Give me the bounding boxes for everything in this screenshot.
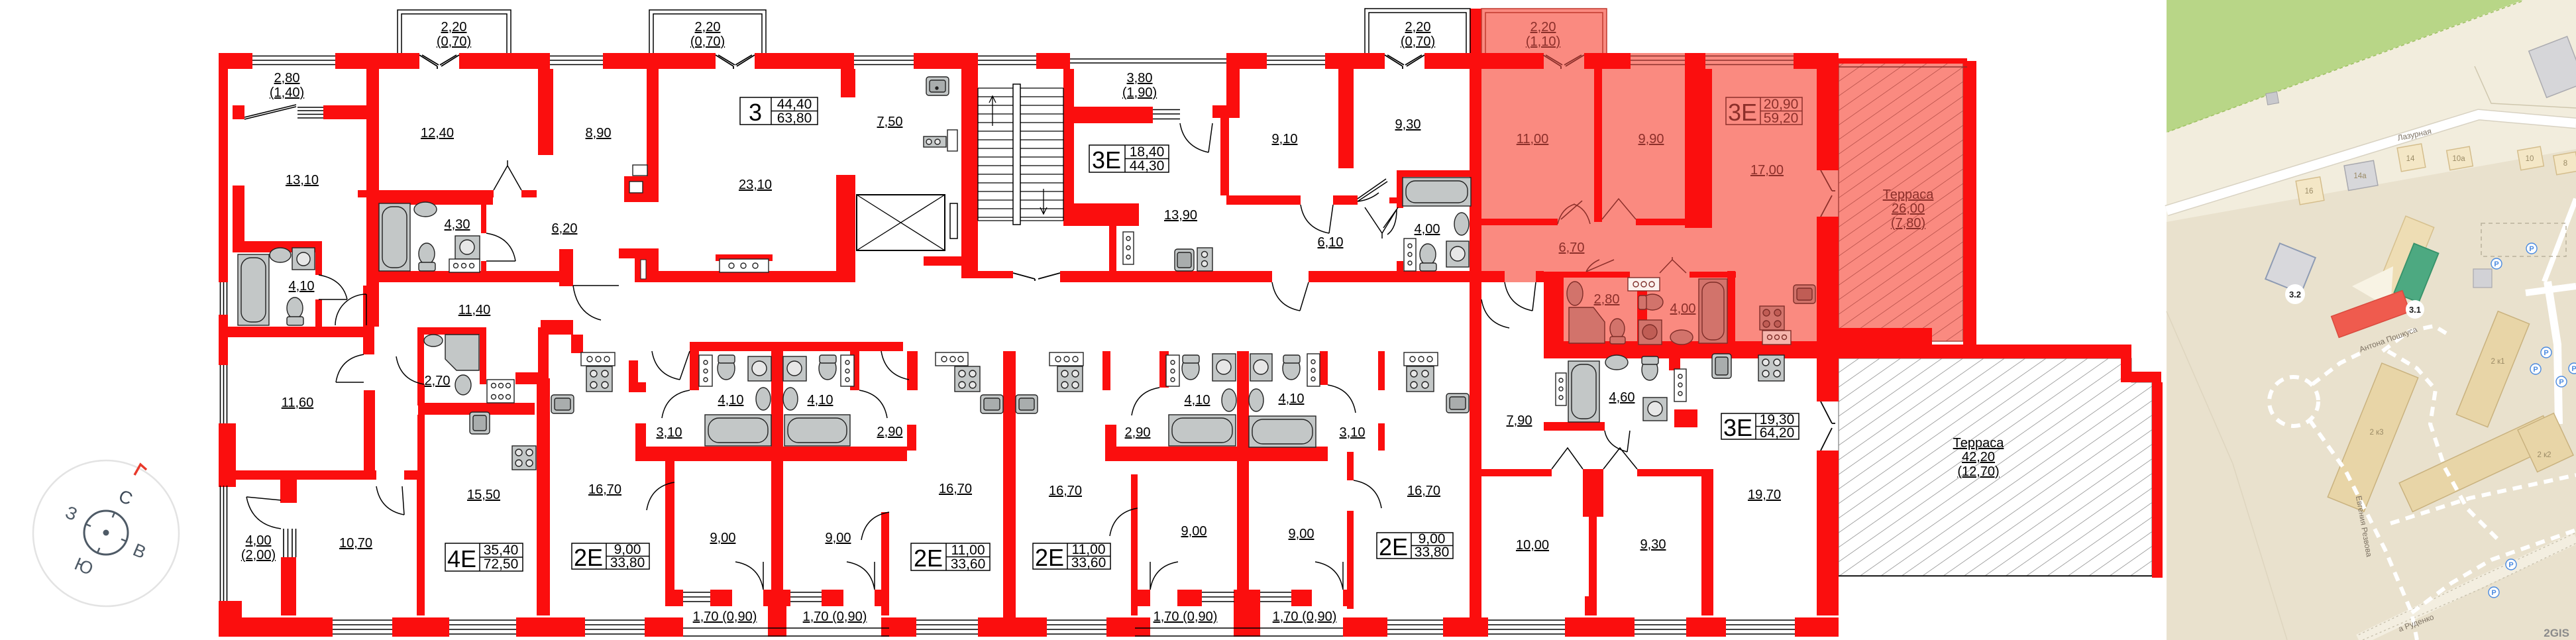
svg-text:4,10: 4,10 bbox=[718, 393, 744, 407]
svg-text:(1,10): (1,10) bbox=[1526, 34, 1560, 49]
svg-text:2,20: 2,20 bbox=[1405, 20, 1431, 34]
svg-text:P: P bbox=[2571, 365, 2576, 373]
svg-text:P: P bbox=[2491, 589, 2496, 597]
svg-text:26,00: 26,00 bbox=[1892, 201, 1925, 216]
svg-text:11,40: 11,40 bbox=[458, 303, 491, 317]
svg-text:3,80: 3,80 bbox=[1127, 71, 1153, 85]
svg-text:(0,70): (0,70) bbox=[437, 34, 471, 49]
svg-text:59,20: 59,20 bbox=[1764, 111, 1799, 126]
svg-text:13,10: 13,10 bbox=[286, 173, 319, 187]
svg-text:2,20: 2,20 bbox=[441, 20, 467, 34]
svg-text:7,50: 7,50 bbox=[877, 115, 903, 129]
svg-text:4,10: 4,10 bbox=[289, 279, 315, 293]
svg-text:10,70: 10,70 bbox=[339, 536, 372, 551]
svg-text:2,90: 2,90 bbox=[1125, 425, 1151, 440]
svg-text:9,30: 9,30 bbox=[1640, 537, 1666, 552]
svg-text:16,70: 16,70 bbox=[1407, 484, 1440, 498]
svg-text:6,70: 6,70 bbox=[1559, 240, 1585, 255]
svg-text:18,40: 18,40 bbox=[1130, 144, 1165, 160]
svg-text:3Е: 3Е bbox=[1728, 99, 1757, 126]
svg-text:3Е: 3Е bbox=[1723, 414, 1752, 441]
svg-text:11,00: 11,00 bbox=[1517, 132, 1549, 146]
svg-text:33,60: 33,60 bbox=[1071, 555, 1106, 570]
svg-text:12,40: 12,40 bbox=[421, 126, 454, 140]
svg-text:2Е: 2Е bbox=[1035, 544, 1064, 571]
svg-text:2,80: 2,80 bbox=[1594, 292, 1620, 307]
svg-text:19,70: 19,70 bbox=[1748, 488, 1781, 502]
svg-text:Терраса: Терраса bbox=[1883, 187, 1935, 202]
svg-text:4,10: 4,10 bbox=[1185, 393, 1210, 407]
svg-text:9,10: 9,10 bbox=[1272, 132, 1298, 146]
svg-text:(1,40): (1,40) bbox=[270, 85, 304, 100]
svg-text:11,60: 11,60 bbox=[282, 396, 314, 410]
svg-text:4,60: 4,60 bbox=[1609, 390, 1635, 405]
svg-text:2 к1: 2 к1 bbox=[2491, 358, 2504, 366]
svg-text:10: 10 bbox=[2526, 155, 2534, 163]
svg-text:(0,70): (0,70) bbox=[690, 34, 725, 49]
svg-text:2,20: 2,20 bbox=[695, 20, 721, 34]
svg-text:3,10: 3,10 bbox=[657, 425, 682, 440]
svg-text:33,60: 33,60 bbox=[951, 557, 986, 572]
svg-text:P: P bbox=[2508, 561, 2513, 569]
svg-text:23,10: 23,10 bbox=[739, 178, 772, 192]
svg-text:10,00: 10,00 bbox=[1516, 538, 1549, 553]
svg-text:14а: 14а bbox=[2353, 172, 2367, 180]
svg-text:4Е: 4Е bbox=[447, 545, 476, 572]
svg-text:P: P bbox=[2544, 349, 2548, 357]
svg-text:63,80: 63,80 bbox=[777, 111, 812, 126]
svg-text:2,80: 2,80 bbox=[274, 71, 300, 85]
svg-text:4,30: 4,30 bbox=[445, 217, 470, 232]
svg-text:42,20: 42,20 bbox=[1962, 450, 1995, 464]
svg-text:1,70 (0,90): 1,70 (0,90) bbox=[693, 610, 757, 624]
svg-text:2,20: 2,20 bbox=[1530, 20, 1556, 34]
svg-text:17,00: 17,00 bbox=[1750, 163, 1784, 178]
svg-text:9,00: 9,00 bbox=[1289, 527, 1315, 541]
svg-text:2,70: 2,70 bbox=[425, 374, 451, 388]
svg-text:16,70: 16,70 bbox=[588, 482, 621, 497]
svg-text:9,00: 9,00 bbox=[826, 531, 851, 545]
svg-text:2 к3: 2 к3 bbox=[2369, 429, 2383, 437]
svg-text:Терраса: Терраса bbox=[1953, 436, 2005, 451]
svg-text:(7,80): (7,80) bbox=[1891, 216, 1925, 231]
svg-text:9,00: 9,00 bbox=[710, 531, 736, 545]
svg-text:(0,70): (0,70) bbox=[1401, 34, 1435, 49]
svg-text:13,90: 13,90 bbox=[1164, 208, 1197, 223]
svg-text:6,10: 6,10 bbox=[1318, 235, 1344, 250]
svg-text:15,50: 15,50 bbox=[467, 488, 500, 502]
svg-text:2,90: 2,90 bbox=[877, 425, 903, 439]
svg-text:2Е: 2Е bbox=[574, 544, 603, 571]
svg-text:14: 14 bbox=[2406, 155, 2415, 163]
svg-text:4,00: 4,00 bbox=[1415, 222, 1440, 237]
svg-text:35,40: 35,40 bbox=[484, 543, 519, 558]
svg-text:9,90: 9,90 bbox=[1638, 132, 1664, 146]
svg-text:4,00: 4,00 bbox=[246, 533, 272, 548]
svg-text:2Е: 2Е bbox=[914, 545, 943, 572]
svg-text:33,80: 33,80 bbox=[610, 555, 645, 570]
svg-text:64,20: 64,20 bbox=[1760, 425, 1795, 441]
svg-text:44,30: 44,30 bbox=[1130, 158, 1165, 174]
svg-text:2GIS: 2GIS bbox=[2544, 627, 2569, 639]
svg-text:1,70 (0,90): 1,70 (0,90) bbox=[1273, 610, 1337, 624]
svg-text:3Е: 3Е bbox=[1092, 146, 1121, 174]
svg-text:16,70: 16,70 bbox=[939, 482, 972, 496]
svg-text:9,00: 9,00 bbox=[1181, 524, 1207, 539]
svg-text:9,30: 9,30 bbox=[1395, 117, 1421, 132]
svg-text:1,70 (0,90): 1,70 (0,90) bbox=[803, 610, 867, 624]
svg-text:8: 8 bbox=[2563, 160, 2567, 168]
svg-text:72,50: 72,50 bbox=[484, 557, 519, 572]
svg-text:4,10: 4,10 bbox=[1279, 392, 1305, 406]
svg-text:11,00: 11,00 bbox=[951, 543, 985, 558]
svg-text:6,20: 6,20 bbox=[552, 221, 578, 236]
svg-text:2 к2: 2 к2 bbox=[2537, 451, 2551, 459]
svg-text:P: P bbox=[2559, 378, 2563, 386]
svg-text:3.1: 3.1 bbox=[2409, 305, 2421, 315]
svg-text:3,10: 3,10 bbox=[1340, 425, 1366, 440]
svg-text:10а: 10а bbox=[2452, 155, 2465, 163]
svg-text:4,00: 4,00 bbox=[1670, 301, 1696, 316]
svg-text:P: P bbox=[2494, 260, 2498, 268]
svg-text:44,40: 44,40 bbox=[777, 97, 812, 112]
svg-text:8,90: 8,90 bbox=[586, 126, 612, 140]
svg-text:P: P bbox=[2533, 366, 2538, 374]
svg-text:33,80: 33,80 bbox=[1415, 545, 1450, 560]
svg-text:1,70 (0,90): 1,70 (0,90) bbox=[1154, 610, 1218, 624]
svg-text:16,70: 16,70 bbox=[1049, 484, 1082, 498]
svg-text:(1,90): (1,90) bbox=[1122, 85, 1157, 100]
svg-text:(12,70): (12,70) bbox=[1957, 464, 1999, 479]
svg-text:2Е: 2Е bbox=[1379, 533, 1408, 560]
svg-text:20,90: 20,90 bbox=[1764, 97, 1799, 112]
svg-text:16: 16 bbox=[2305, 187, 2314, 195]
svg-text:3: 3 bbox=[749, 99, 762, 126]
svg-text:(2,00): (2,00) bbox=[241, 548, 276, 562]
svg-text:P: P bbox=[2529, 245, 2534, 253]
svg-text:7,90: 7,90 bbox=[1507, 413, 1532, 428]
svg-text:3.2: 3.2 bbox=[2289, 290, 2301, 299]
svg-text:4,10: 4,10 bbox=[808, 393, 833, 407]
